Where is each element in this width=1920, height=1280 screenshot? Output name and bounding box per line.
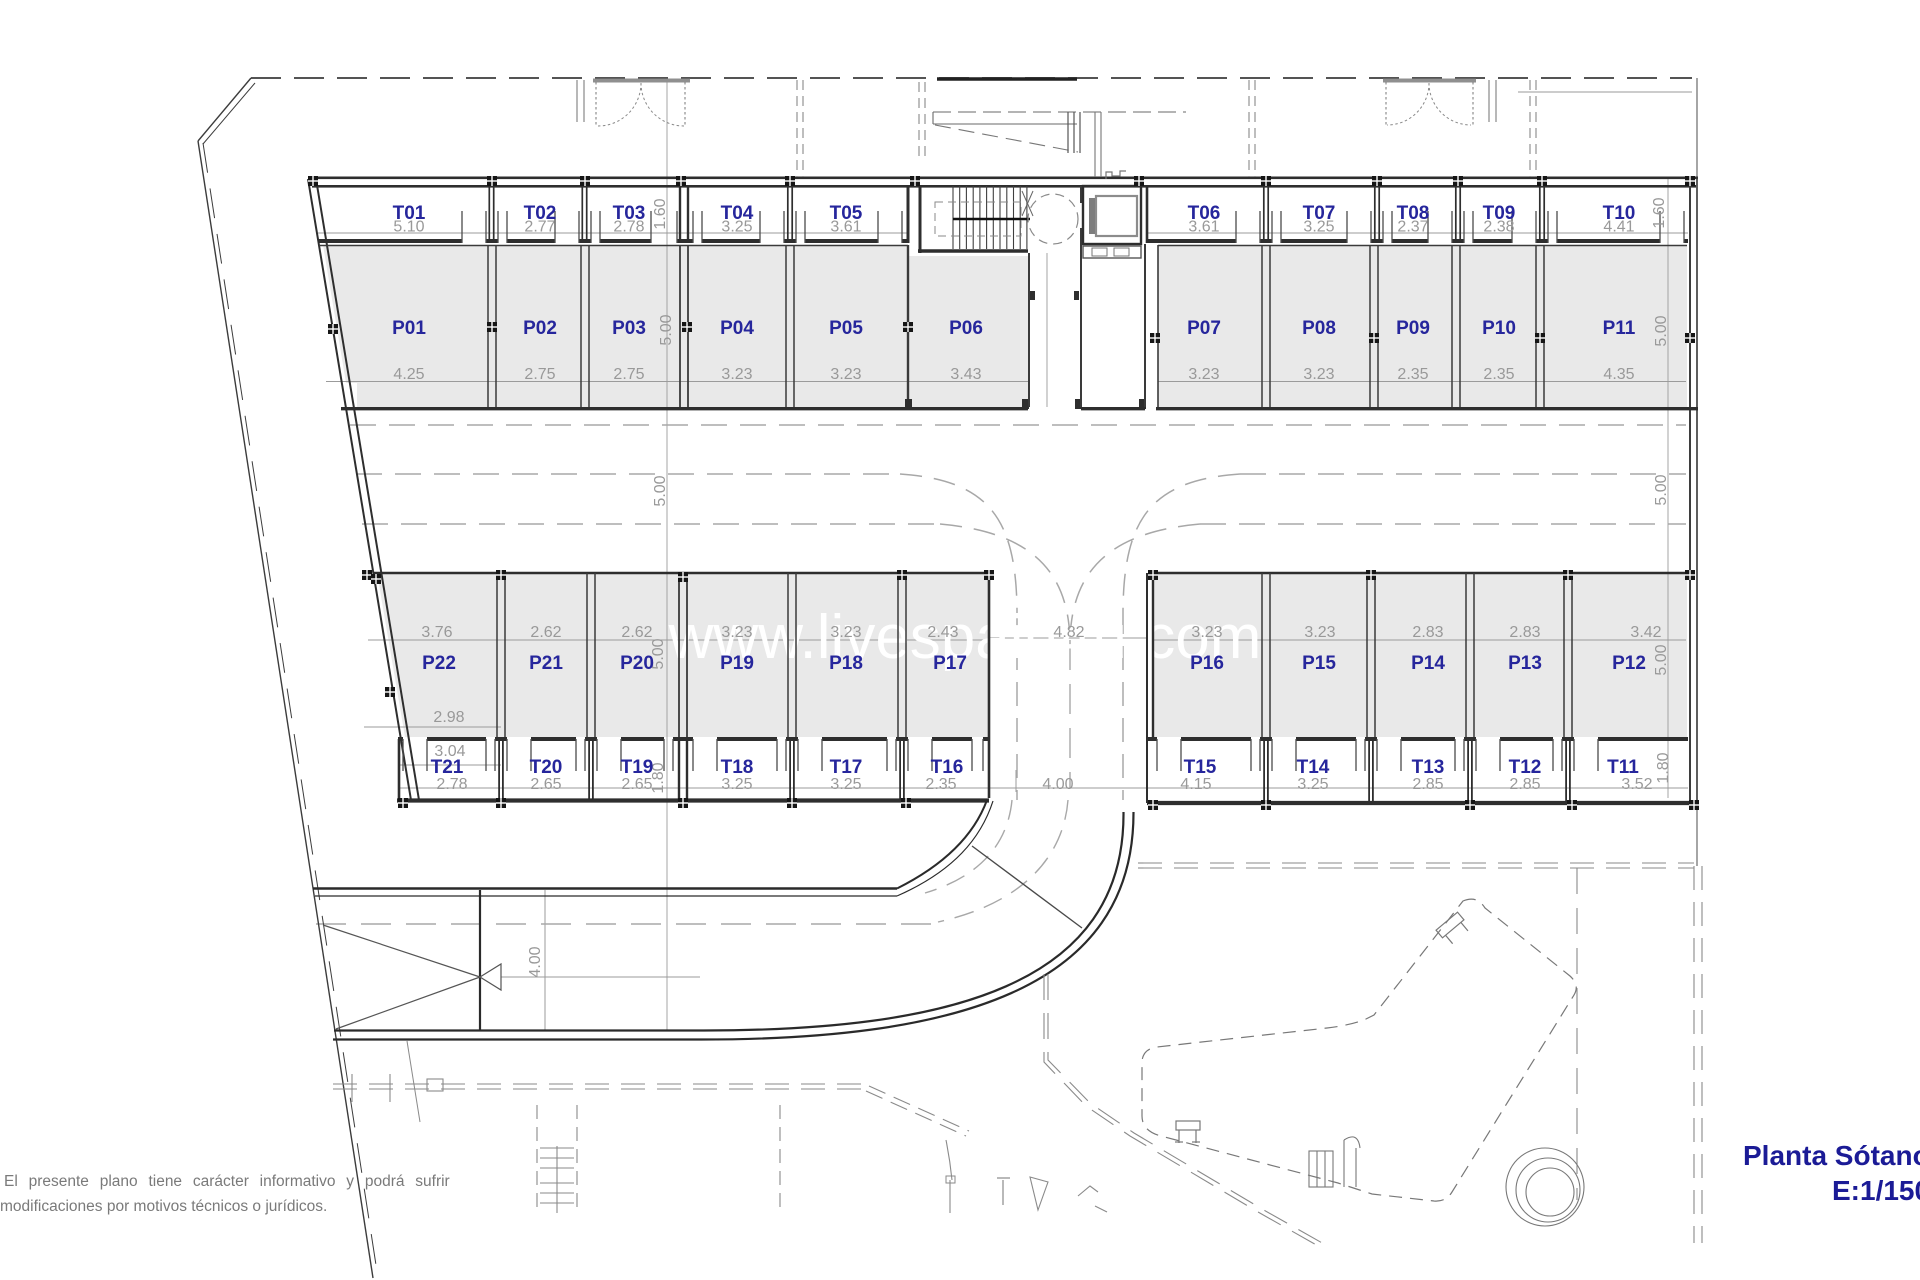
svg-text:P15: P15 <box>1302 653 1336 674</box>
svg-text:5.00: 5.00 <box>658 314 675 345</box>
svg-text:T21: T21 <box>431 757 464 778</box>
svg-text:5.00: 5.00 <box>1653 315 1670 346</box>
svg-text:2.83: 2.83 <box>1412 624 1443 641</box>
svg-text:P05: P05 <box>829 318 863 339</box>
svg-text:2.35: 2.35 <box>1397 366 1428 383</box>
svg-text:P22: P22 <box>422 653 456 674</box>
svg-text:3.23: 3.23 <box>1303 366 1334 383</box>
svg-text:2.77: 2.77 <box>524 219 555 236</box>
svg-text:P20: P20 <box>620 653 654 674</box>
svg-text:2.43: 2.43 <box>927 624 958 641</box>
svg-text:El presente plano tiene caráct: El presente plano tiene carácter informa… <box>4 1173 450 1190</box>
svg-text:P03: P03 <box>612 318 646 339</box>
svg-text:3.23: 3.23 <box>1188 366 1219 383</box>
svg-text:3.23: 3.23 <box>830 366 861 383</box>
svg-text:3.25: 3.25 <box>1297 776 1328 793</box>
svg-text:1.60: 1.60 <box>1651 197 1668 228</box>
svg-text:3.42: 3.42 <box>1630 624 1661 641</box>
svg-text:3.25: 3.25 <box>830 776 861 793</box>
svg-text:T13: T13 <box>1412 757 1445 778</box>
svg-text:4.00: 4.00 <box>1042 776 1073 793</box>
svg-text:2.37: 2.37 <box>1397 219 1428 236</box>
svg-text:2.83: 2.83 <box>1509 624 1540 641</box>
svg-text:E:1/150: E:1/150 <box>1832 1175 1920 1206</box>
svg-text:4.82: 4.82 <box>1053 624 1084 641</box>
svg-text:P17: P17 <box>933 653 967 674</box>
svg-text:3.23: 3.23 <box>830 624 861 641</box>
svg-text:4.25: 4.25 <box>393 366 424 383</box>
svg-text:2.78: 2.78 <box>613 219 644 236</box>
svg-text:4.41: 4.41 <box>1603 219 1634 236</box>
svg-text:3.23: 3.23 <box>721 366 752 383</box>
svg-text:P08: P08 <box>1302 318 1336 339</box>
svg-text:P02: P02 <box>523 318 557 339</box>
svg-text:2.75: 2.75 <box>613 366 644 383</box>
svg-text:T17: T17 <box>830 757 863 778</box>
svg-text:2.65: 2.65 <box>621 776 652 793</box>
svg-text:3.25: 3.25 <box>1303 219 1334 236</box>
svg-text:T20: T20 <box>530 757 563 778</box>
svg-text:2.85: 2.85 <box>1412 776 1443 793</box>
svg-text:P19: P19 <box>720 653 754 674</box>
svg-text:P21: P21 <box>529 653 563 674</box>
svg-text:5.00: 5.00 <box>1653 644 1670 675</box>
svg-text:5.00: 5.00 <box>1653 474 1670 505</box>
svg-text:2.65: 2.65 <box>530 776 561 793</box>
svg-text:P18: P18 <box>829 653 863 674</box>
svg-text:3.25: 3.25 <box>721 219 752 236</box>
svg-text:1.80: 1.80 <box>1655 752 1672 783</box>
svg-text:3.61: 3.61 <box>1188 219 1219 236</box>
svg-text:T11: T11 <box>1607 757 1639 778</box>
svg-text:4.35: 4.35 <box>1603 366 1634 383</box>
svg-text:3.25: 3.25 <box>721 776 752 793</box>
svg-text:P10: P10 <box>1482 318 1516 339</box>
svg-text:3.23: 3.23 <box>1304 624 1335 641</box>
svg-text:2.35: 2.35 <box>1483 366 1514 383</box>
svg-text:2.62: 2.62 <box>621 624 652 641</box>
svg-text:P07: P07 <box>1187 318 1221 339</box>
svg-text:P06: P06 <box>949 318 983 339</box>
svg-text:T16: T16 <box>931 757 964 778</box>
svg-text:3.61: 3.61 <box>830 219 861 236</box>
svg-text:1.60: 1.60 <box>652 198 669 229</box>
svg-text:P16: P16 <box>1190 653 1224 674</box>
svg-text:T18: T18 <box>721 757 754 778</box>
svg-text:5.10: 5.10 <box>393 219 424 236</box>
svg-text:P13: P13 <box>1508 653 1542 674</box>
svg-text:3.23: 3.23 <box>721 624 752 641</box>
svg-text:P12: P12 <box>1612 653 1646 674</box>
svg-text:T15: T15 <box>1184 757 1217 778</box>
svg-text:T12: T12 <box>1509 757 1542 778</box>
svg-text:modificaciones por motivos téc: modificaciones por motivos técnicos o ju… <box>0 1198 327 1215</box>
svg-text:T14: T14 <box>1297 757 1330 778</box>
svg-text:2.38: 2.38 <box>1483 219 1514 236</box>
svg-text:3.76: 3.76 <box>421 624 452 641</box>
svg-text:2.35: 2.35 <box>925 776 956 793</box>
svg-text:P09: P09 <box>1396 318 1430 339</box>
svg-text:2.78: 2.78 <box>436 776 467 793</box>
svg-text:2.85: 2.85 <box>1509 776 1540 793</box>
svg-text:4.00: 4.00 <box>527 946 544 977</box>
svg-text:2.98: 2.98 <box>433 709 464 726</box>
svg-text:2.62: 2.62 <box>530 624 561 641</box>
svg-text:P01: P01 <box>392 318 426 339</box>
svg-text:3.43: 3.43 <box>950 366 981 383</box>
svg-text:T19: T19 <box>621 757 654 778</box>
svg-text:3.23: 3.23 <box>1191 624 1222 641</box>
svg-text:4.15: 4.15 <box>1180 776 1211 793</box>
svg-text:Planta Sótano: Planta Sótano <box>1743 1140 1920 1171</box>
svg-text:2.75: 2.75 <box>524 366 555 383</box>
svg-text:P11: P11 <box>1603 318 1636 339</box>
svg-text:5.00: 5.00 <box>652 475 669 506</box>
svg-text:P14: P14 <box>1411 653 1445 674</box>
svg-text:P04: P04 <box>720 318 754 339</box>
svg-text:3.52: 3.52 <box>1621 776 1652 793</box>
